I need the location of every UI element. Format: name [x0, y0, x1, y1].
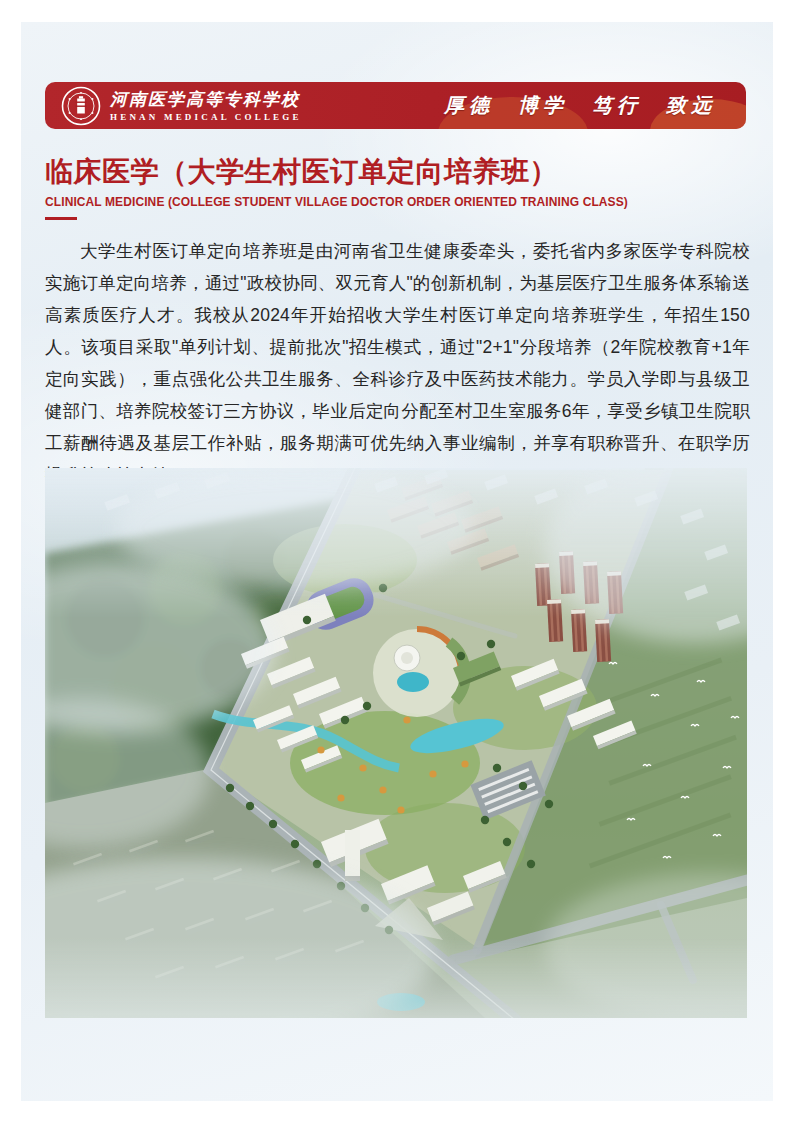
page-title: 临床医学（大学生村医订单定向培养班）: [45, 155, 750, 189]
college-motto: 厚德 博学 笃行 致远: [444, 92, 746, 119]
header-bar: 河南医学高等专科学校 HENAN MEDICAL COLLEGE 厚德 博学 笃…: [45, 82, 746, 129]
content-area: 临床医学（大学生村医订单定向培养班） CLINICAL MEDICINE (CO…: [21, 129, 773, 491]
college-seal-icon: [61, 86, 101, 126]
tall-white-tower: [345, 830, 360, 880]
page-card: 河南医学高等专科学校 HENAN MEDICAL COLLEGE 厚德 博学 笃…: [21, 22, 773, 1101]
campus-aerial-scene: [45, 468, 747, 1018]
college-name-zh: 河南医学高等专科学校: [110, 89, 302, 109]
college-name-en: HENAN MEDICAL COLLEGE: [110, 111, 302, 123]
plaza-pond: [397, 672, 429, 692]
intro-paragraph: 大学生村医订单定向培养班是由河南省卫生健康委牵头，委托省内多家医学专科院校实施订…: [45, 235, 750, 491]
page-subtitle-en: CLINICAL MEDICINE (COLLEGE STUDENT VILLA…: [45, 195, 750, 209]
college-brand: 河南医学高等专科学校 HENAN MEDICAL COLLEGE: [45, 86, 302, 126]
campus-aerial-image: [45, 468, 747, 1018]
title-underline: [45, 217, 77, 220]
college-names: 河南医学高等专科学校 HENAN MEDICAL COLLEGE: [110, 89, 302, 123]
page-canvas: 河南医学高等专科学校 HENAN MEDICAL COLLEGE 厚德 博学 笃…: [0, 0, 794, 1123]
